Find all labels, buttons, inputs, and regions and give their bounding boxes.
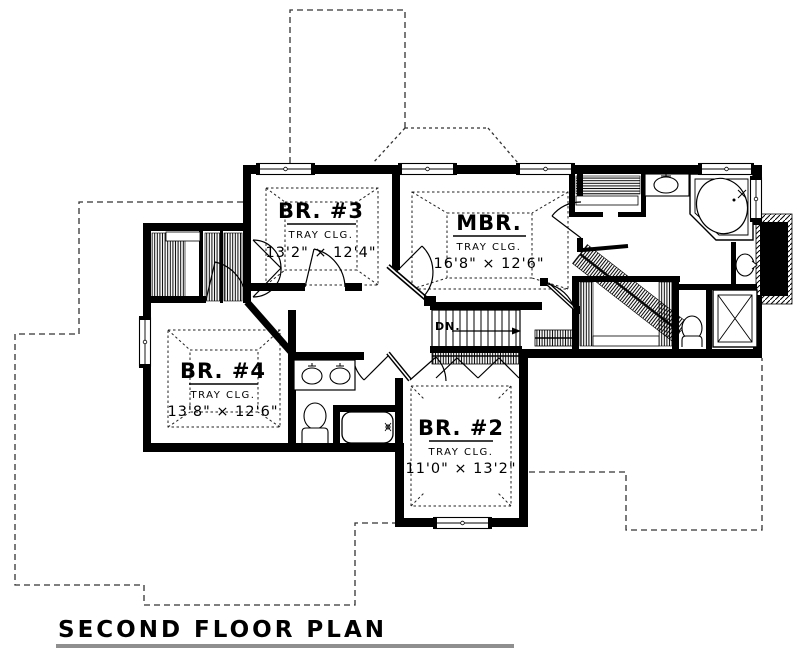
plan-title-underline (56, 644, 514, 648)
closet-hatch-br3-a (205, 233, 220, 301)
wall-left-section-top (143, 223, 251, 231)
window-bath-top (698, 163, 754, 175)
wall-mbr-bottom (430, 302, 542, 310)
mbr-name: MBR. (456, 211, 521, 235)
wall-mcloset-left (569, 174, 575, 216)
wall-br2-left (395, 443, 404, 527)
sink-right (330, 368, 350, 384)
closet-shelf-master-top (576, 196, 638, 205)
closet-hatch-wic-left (580, 282, 593, 346)
br4-ceiling: TRAY CLG. (190, 390, 256, 401)
chimney-core (760, 222, 788, 296)
door-corner-block (424, 296, 436, 306)
mtoilet-tank (682, 336, 702, 347)
br2-dims: 11'0" × 13'2" (405, 461, 516, 477)
wall-tub-surround-h (333, 405, 395, 412)
closet-hatch-br4-walkin (152, 233, 185, 297)
wall-stub-masterdoor-1 (540, 278, 548, 286)
wall-br2-left-upper (395, 378, 403, 448)
hall-bath-vanity (294, 360, 355, 390)
sink-left (302, 368, 322, 384)
master-sink (654, 177, 678, 193)
master-toilet (682, 316, 702, 347)
window-bath-right (750, 176, 762, 222)
br2-name: BR. #2 (418, 416, 504, 440)
tub-outline (342, 412, 393, 443)
master-shower (713, 290, 757, 347)
wall-closet-divider-2 (220, 231, 223, 303)
stairs-dn-label: DN. (435, 320, 461, 333)
wall-br3-bottom-left (251, 283, 305, 291)
br2-ceiling: TRAY CLG. (428, 447, 494, 458)
plan-title-text: SECOND FLOOR PLAN (58, 617, 387, 643)
mbr-ceiling: TRAY CLG. (456, 242, 522, 253)
closet-shelf-br4 (166, 232, 200, 241)
hall-bath-toilet (302, 403, 328, 443)
wall-closet-divider-1 (199, 231, 203, 303)
wall-mbr-right-lower (577, 238, 583, 252)
wall-mcloset-bottom-1 (569, 212, 603, 217)
floor-plan-drawing: BR. #3 TRAY CLG. 13'2" × 12'4" MBR. TRAY… (0, 0, 800, 664)
window-mbr-top-2 (516, 163, 575, 175)
hall-bath-tub (342, 412, 393, 443)
wall-shower-top (678, 284, 757, 290)
br3-dims: 13'2" × 12'4" (265, 245, 376, 261)
chimney (756, 214, 792, 304)
wall-br3-left-exterior (243, 165, 251, 231)
wall-midwc-divider (731, 242, 736, 288)
toilet-bowl (304, 403, 326, 429)
br4-dims: 13'8" × 12'6" (167, 404, 278, 420)
tub-jet (733, 199, 736, 202)
closet-shelf-wic (593, 336, 659, 346)
br3-name: BR. #3 (278, 199, 364, 223)
toilet-tank (302, 428, 328, 443)
window-br2-bottom (433, 517, 492, 529)
wall-bottom-left-section (143, 443, 403, 452)
wall-top (243, 165, 762, 174)
floor-plan-page: BR. #3 TRAY CLG. 13'2" × 12'4" MBR. TRAY… (0, 0, 800, 664)
wall-br3-bottom-right (345, 283, 362, 291)
br4-name: BR. #4 (180, 359, 266, 383)
wall-wc-shower-divider (706, 288, 712, 350)
wall-master-bottom (523, 349, 762, 358)
wall-closet-right (243, 231, 251, 303)
master-vanity (645, 173, 689, 196)
br3-ceiling: TRAY CLG. (288, 230, 354, 241)
window-br3-top (256, 163, 315, 175)
wall-tub-surround-v (333, 405, 340, 443)
wall-br3-mbr-divider (392, 174, 400, 270)
mbr-dims: 16'8" × 12'6" (433, 256, 544, 272)
wall-mcloset-bottom-2 (618, 212, 646, 217)
window-mbr-top-1 (398, 163, 457, 175)
wall-br2-right (519, 349, 528, 527)
closet-hatch-master-top (576, 176, 640, 194)
window-br4-left (139, 316, 151, 368)
